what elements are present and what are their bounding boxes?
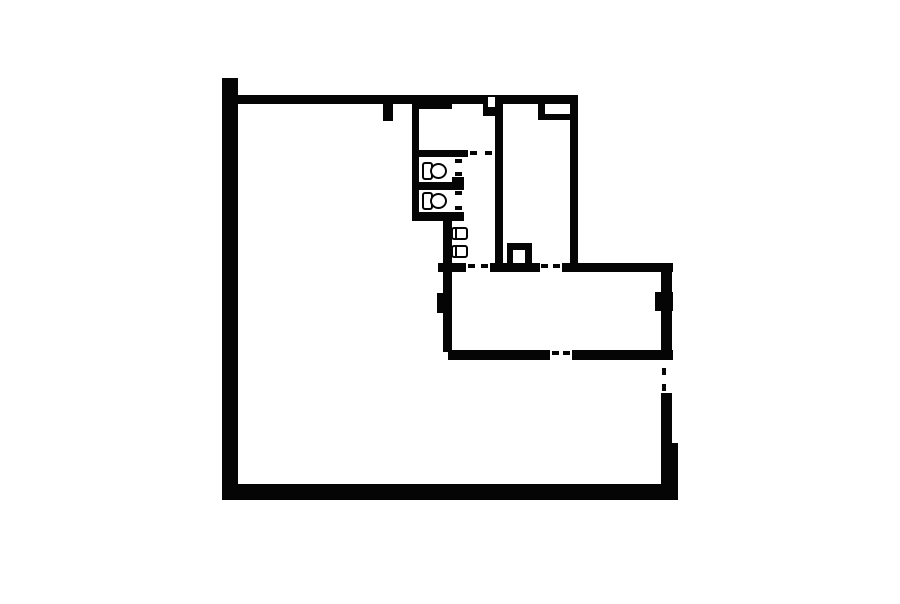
toilet-stall-1-bowl-icon <box>430 163 447 179</box>
stall2-door-tick-top <box>455 191 462 195</box>
rightroom-door-tick-right <box>553 264 560 268</box>
toproom-door-tick-right <box>485 151 492 155</box>
toproom-bottom-wall <box>412 150 468 157</box>
corridor-right-wall <box>495 104 503 272</box>
upper-right-wall <box>570 95 578 263</box>
mid-wall-segment-a <box>438 263 466 272</box>
stall1-door-tick-top <box>455 159 462 163</box>
right-pilaster <box>655 292 673 311</box>
left-pilaster <box>437 293 452 313</box>
right-opening-tick-bottom <box>662 384 666 391</box>
corridor-door-tick-right <box>481 264 488 268</box>
mid-wall-segment-c <box>562 263 673 272</box>
vent-notch <box>488 97 495 107</box>
top-outer-wall <box>222 95 578 104</box>
top-wall-stub <box>383 104 393 121</box>
middleroom-bottom-wall-b <box>572 350 673 360</box>
sink-1-faucet-icon <box>447 231 452 237</box>
middleroom-door-tick-right <box>563 351 570 355</box>
rightroom-door-tick-left <box>541 264 548 268</box>
washroom-left-wall <box>443 221 452 352</box>
middleroom-door-tick-left <box>552 351 559 355</box>
sink-2-faucet-icon <box>447 249 452 255</box>
middleroom-bottom-wall-a <box>448 350 550 360</box>
niche-interior <box>545 104 570 114</box>
toproom-door-tick-left <box>470 151 477 155</box>
stall1-door-tick-bottom <box>455 172 462 176</box>
bottom-outer-wall <box>222 484 678 500</box>
lower-right-wall-lower <box>661 443 678 484</box>
sink-2-backline <box>455 247 457 256</box>
sink-1-backline <box>455 229 457 238</box>
floor-plan: f <box>0 0 900 604</box>
duct-column-interior <box>513 250 525 263</box>
toilet-stall-2-bowl-icon <box>430 193 447 209</box>
stall2-door-tick-bottom <box>455 206 462 210</box>
sink-1-basin-icon <box>451 227 468 240</box>
stall-bottom-wall <box>412 212 464 221</box>
corridor-door-tick-left <box>468 264 475 268</box>
mid-wall-segment-b <box>490 263 540 272</box>
toilet-block-left-wall <box>412 104 419 221</box>
right-opening-tick-top <box>662 368 666 375</box>
sink-2-basin-icon <box>451 245 468 258</box>
left-outer-wall <box>222 78 238 500</box>
lower-right-wall-upper <box>661 393 672 443</box>
floorplan-canvas: f <box>0 0 900 604</box>
stall-divider-end-block <box>452 177 464 190</box>
stall-divider-wall <box>412 182 454 190</box>
